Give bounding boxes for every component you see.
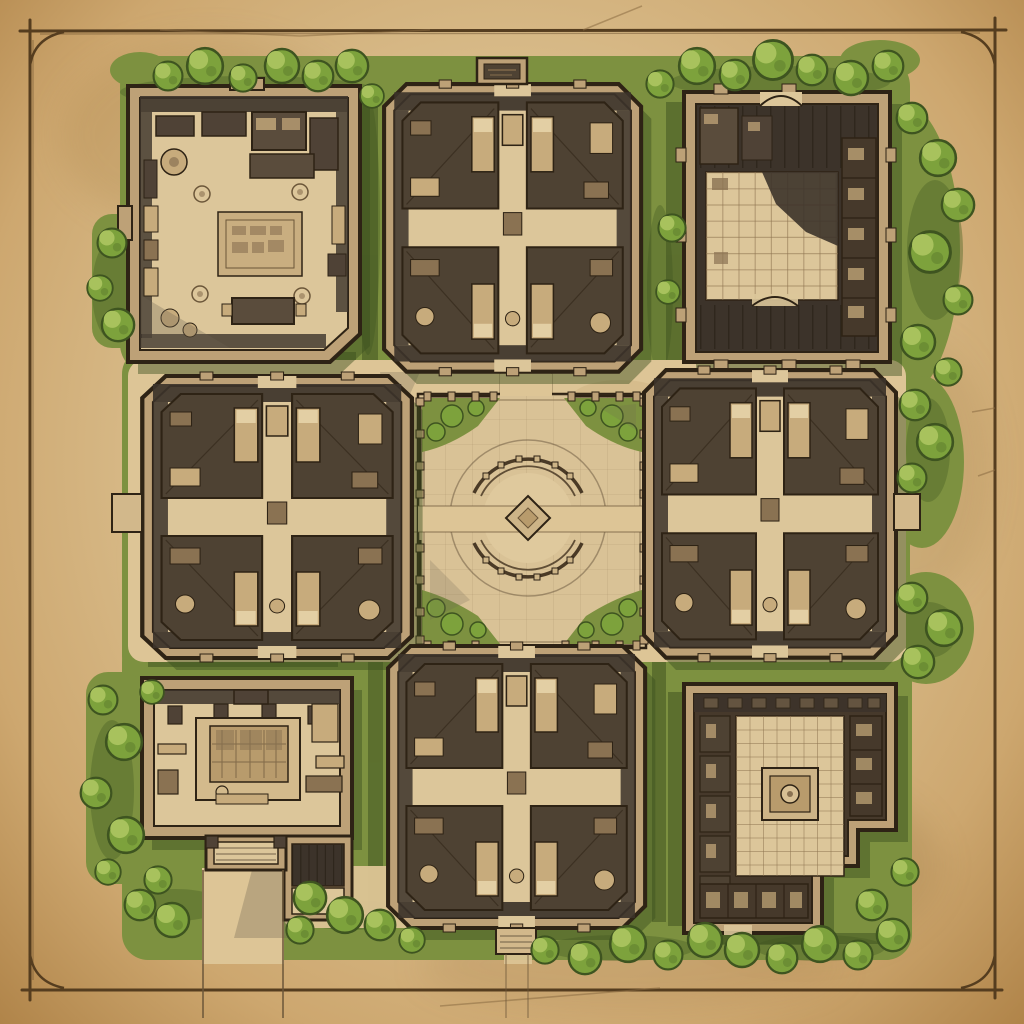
shrine-south-porch: [206, 836, 286, 870]
parchment-map: [0, 0, 1024, 1024]
building-south-dormitory: [388, 642, 655, 940]
north-dormitory-sign-porch: [477, 58, 527, 84]
east-dormitory-balcony: [894, 494, 920, 530]
west-dormitory-balcony: [112, 494, 142, 532]
building-northeast-warehouse: [676, 84, 902, 376]
building-east-dormitory: [644, 366, 906, 670]
hall-table-cluster: [252, 112, 306, 150]
warehouse-north-arch: [760, 92, 802, 106]
temple-west-cells: [700, 716, 730, 912]
building-northwest-hall: [118, 78, 370, 374]
central-plaza: [416, 374, 648, 666]
building-north-dormitory: [384, 80, 651, 384]
map-canvas: [0, 0, 1024, 1024]
south-dormitory-porch: [496, 928, 536, 954]
building-west-dormitory: [142, 372, 422, 670]
warehouse-court-arch: [752, 294, 798, 306]
